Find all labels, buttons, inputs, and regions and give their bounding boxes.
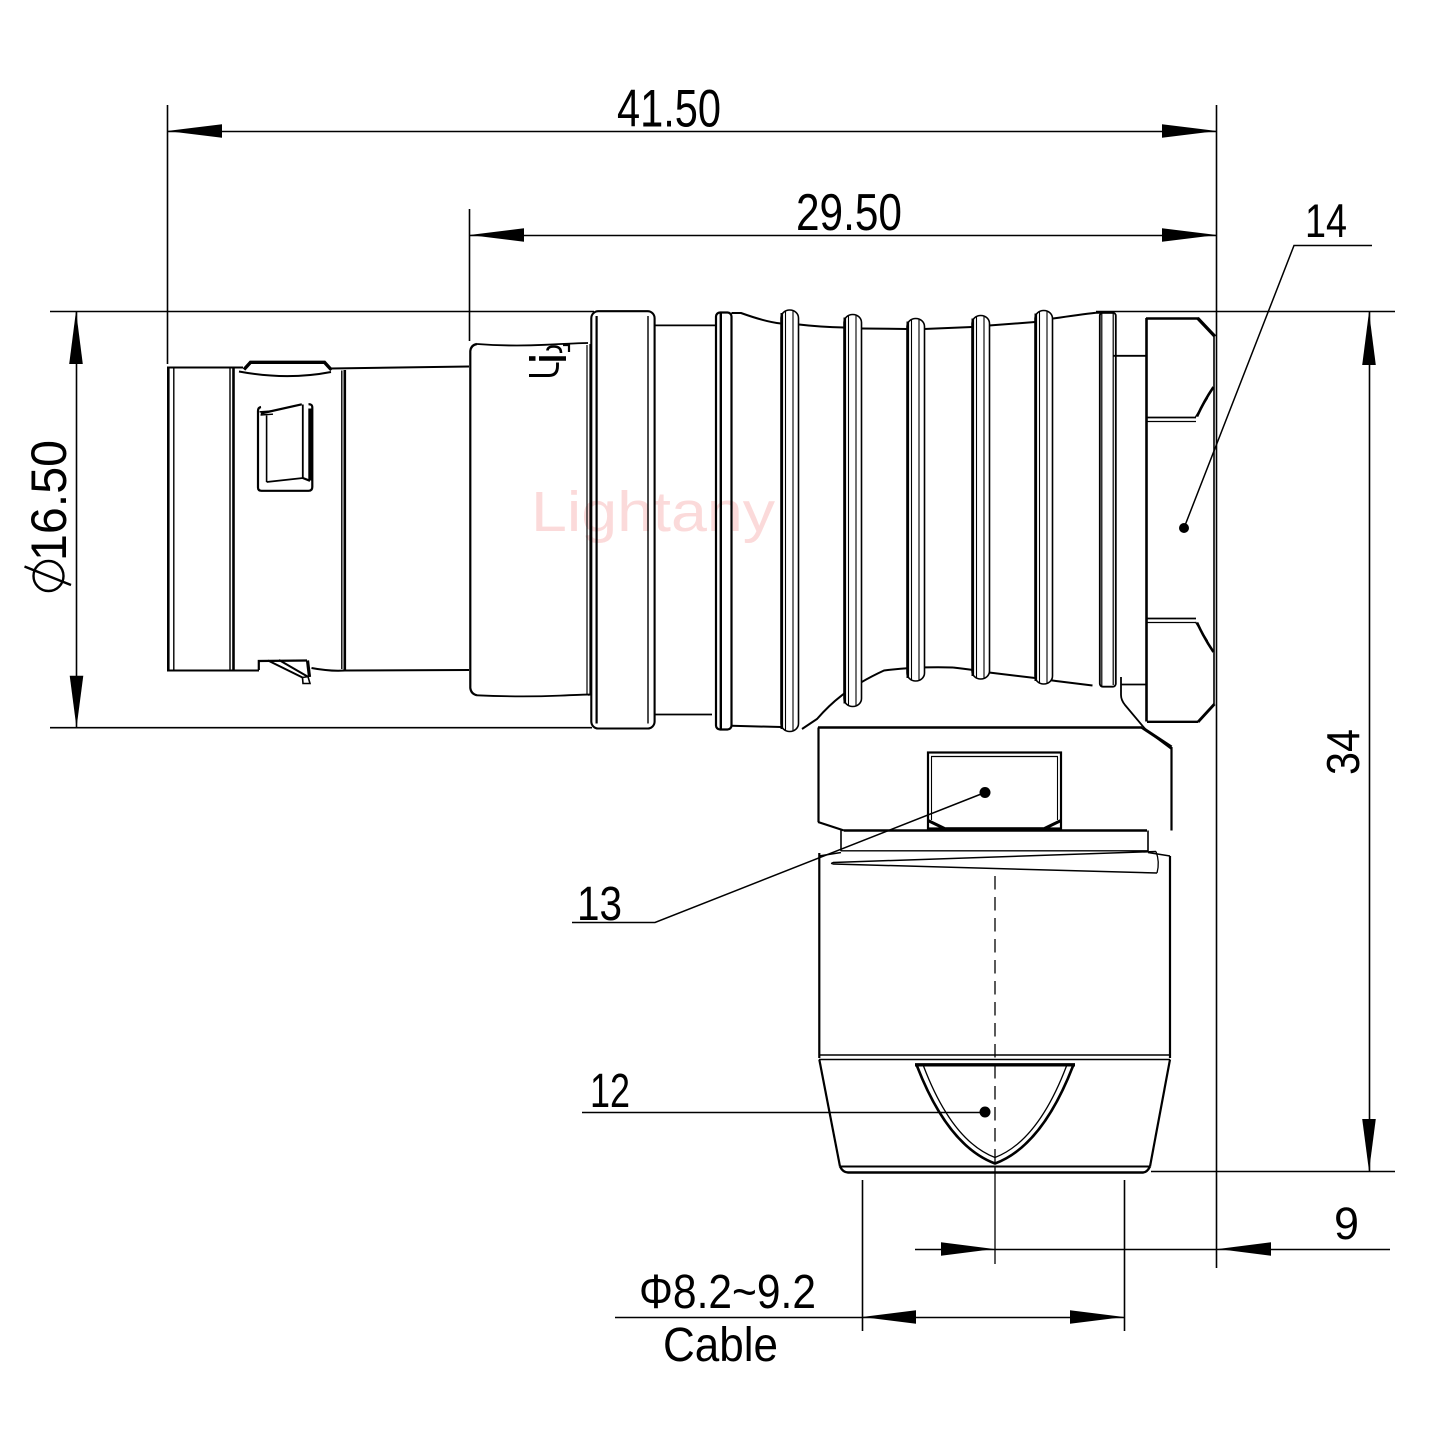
svg-text:34: 34 <box>1317 729 1369 775</box>
svg-text:Lightany: Lightany <box>531 480 776 544</box>
svg-text:9: 9 <box>1334 1198 1359 1249</box>
svg-text:12: 12 <box>590 1065 630 1118</box>
svg-text:Cable: Cable <box>663 1319 778 1372</box>
svg-text:29.50: 29.50 <box>796 184 902 242</box>
svg-text:16.50: 16.50 <box>21 440 77 561</box>
svg-text:41.50: 41.50 <box>617 80 721 139</box>
svg-text:Φ8.2~9.2: Φ8.2~9.2 <box>639 1266 816 1319</box>
svg-text:14: 14 <box>1305 195 1347 248</box>
